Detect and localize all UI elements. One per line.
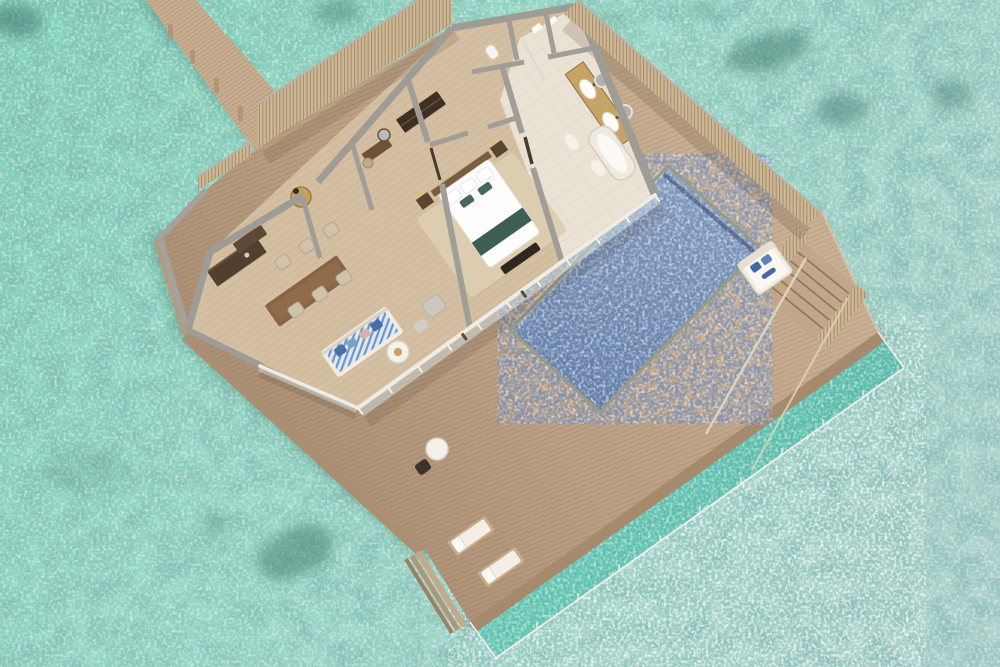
- stool: [363, 158, 373, 168]
- round-side-table: [426, 438, 448, 460]
- table-lamp: [293, 188, 299, 194]
- round-mirror: [378, 129, 390, 141]
- villa-floorplan-render: [0, 0, 1000, 667]
- coffee-table: [387, 341, 409, 363]
